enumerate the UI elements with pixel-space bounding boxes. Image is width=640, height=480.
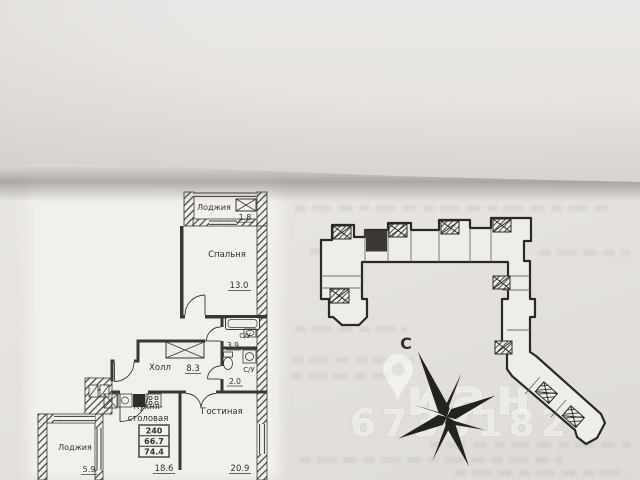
stamp-living-area: 66.7	[144, 437, 164, 446]
room-label-kitchen-1: Кухня-	[133, 402, 163, 412]
stamp-total-area: 74.4	[144, 448, 164, 457]
room-area-loggia-bottom: 5.9	[83, 465, 96, 474]
stair-core	[441, 221, 459, 234]
stamp-flat-number: 240	[146, 427, 163, 436]
area-stamp: 240 66.7 74.4	[139, 425, 169, 457]
room-area-bathroom-1: 3.9	[227, 341, 239, 350]
stair-core	[330, 289, 349, 303]
room-label-kitchen-2: столовая	[128, 414, 169, 424]
room-label-living: Гостиная	[201, 407, 242, 417]
room-area-loggia-top: 1.8	[239, 213, 252, 222]
room-area-bedroom: 13.0	[230, 281, 249, 291]
highlighted-unit	[366, 231, 387, 252]
room-area-living: 20.9	[231, 464, 250, 474]
room-label-bedroom: Спальня	[208, 250, 246, 260]
stair-core	[495, 341, 512, 354]
room-area-bathroom-2: 2.0	[229, 377, 241, 386]
room-label-bathroom-1: С/У	[239, 332, 251, 340]
room-label-hall: Холл	[149, 363, 171, 373]
photo-of-floor-plan-document: { "floor_plan": { "loggia_top": { "label…	[0, 0, 640, 480]
stair-core	[389, 224, 407, 237]
room-label-loggia-top: Лоджия	[197, 203, 231, 212]
room-area-kitchen: 18.6	[155, 464, 174, 474]
toilet	[224, 352, 233, 357]
apartment-floor-plan: 240 66.7 74.4 Лоджия 1.8 Спальня 13.0 С/…	[38, 192, 267, 480]
room-label-loggia-bottom: Лоджия	[58, 443, 92, 452]
compass-north-label: С	[400, 334, 412, 353]
room-area-hall: 8.3	[186, 364, 200, 374]
stair-core	[493, 219, 511, 232]
washing-machine	[243, 350, 256, 363]
room-label-bathroom-2: С/У	[243, 366, 255, 374]
stair-core	[493, 276, 510, 289]
stair-core	[333, 226, 351, 239]
